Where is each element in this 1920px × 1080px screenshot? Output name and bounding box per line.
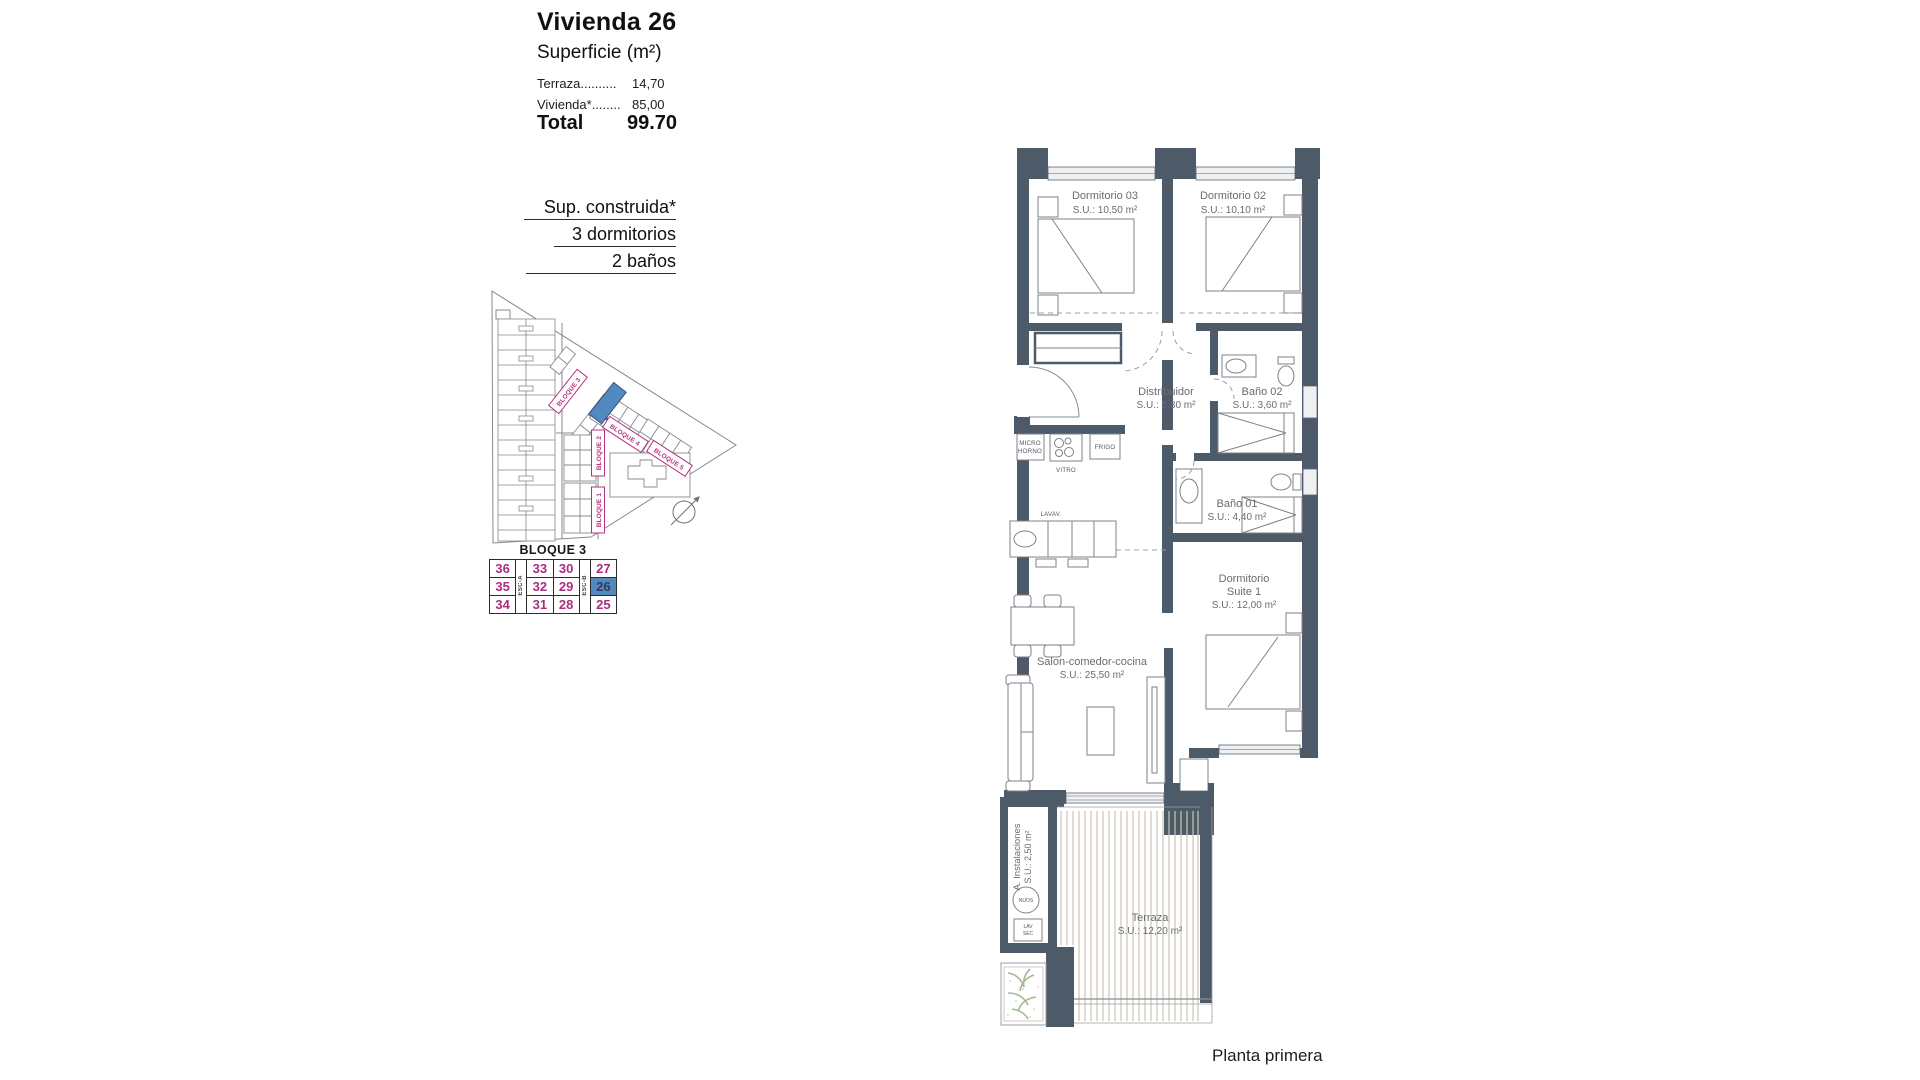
built-info-bathrooms: 2 baños	[526, 250, 676, 274]
label-vitro: VITRO	[1056, 467, 1076, 474]
label-bano01: Baño 01	[1217, 498, 1258, 510]
floor-plan: Dormitorio 03 S.U.: 10,50 m² Dormitorio …	[990, 135, 1350, 1045]
area-salon: S.U.: 25,50 m²	[1060, 670, 1125, 681]
nightstand	[1286, 613, 1302, 633]
chair	[1014, 645, 1031, 657]
label-instalaciones: A. Instalaciones	[1012, 823, 1023, 890]
unit-cell: 27	[590, 560, 616, 578]
label-distribuidor: Distribuidor	[1138, 386, 1194, 398]
block-table: BLOQUE 3 36 ESC-A 33 30 ESC-B 27 35 32 2…	[489, 543, 617, 614]
label-dorm02: Dormitorio 02	[1200, 190, 1266, 202]
label-sec: SEC	[1023, 931, 1034, 937]
site-townhouse-strip	[498, 319, 555, 541]
label-lav: LAV	[1023, 924, 1033, 930]
sofa-arm	[1006, 781, 1030, 791]
nightstand	[1284, 195, 1302, 215]
north-compass-icon	[671, 497, 699, 525]
surface-row-terraza: Terraza.......... 14,70	[537, 76, 687, 91]
planter	[1001, 963, 1046, 1025]
cooktop	[1050, 434, 1082, 461]
label-bano02: Baño 02	[1242, 386, 1283, 398]
sink-basin	[1180, 479, 1198, 503]
bed-dorm02	[1206, 217, 1300, 291]
site-blocks	[550, 347, 692, 533]
island-sink	[1014, 531, 1036, 547]
washer-dryer	[1014, 919, 1042, 941]
page-title: Vivienda 26	[537, 8, 676, 37]
unit-cell: 28	[553, 596, 579, 614]
unit-cell: 34	[490, 596, 516, 614]
plan-sheet: Vivienda 26 Superficie (m²) Terraza.....…	[0, 0, 1920, 1080]
label-suite-1: Dormitorio	[1219, 573, 1270, 585]
area-instalaciones: S.U.: 2,50 m²	[1023, 830, 1033, 883]
unit-cell: 35	[490, 578, 516, 596]
block-table-title: BLOQUE 3	[489, 543, 617, 557]
label-terraza: Terraza	[1132, 912, 1170, 924]
terrace-decking	[1061, 811, 1198, 1021]
toilet-bowl	[1271, 474, 1291, 490]
table-row: 36 ESC-A 33 30 ESC-B 27	[490, 560, 617, 578]
area-bano01: S.U.: 4,40 m²	[1208, 512, 1268, 523]
nightstand	[1284, 293, 1302, 313]
table-row: 35 32 29 26	[490, 578, 617, 596]
area-dorm03: S.U.: 10,50 m²	[1073, 205, 1138, 216]
surface-row-label: Vivienda*........	[537, 97, 621, 112]
label-horno: HORNO	[1018, 448, 1042, 455]
dining-table	[1011, 607, 1074, 645]
built-info: Sup. construida* 3 dormitorios 2 baños	[524, 196, 676, 277]
bed-dorm03	[1038, 219, 1134, 293]
site-plan: BLOQUE 3 BLOQUE 4 BLOQUE 5 BLOQUE 2 BLOQ…	[488, 283, 760, 551]
label-salon: Salon-comedor-cocina	[1037, 656, 1148, 668]
chair	[1044, 595, 1061, 607]
toilet-bowl	[1278, 366, 1294, 386]
unit-cell: 33	[527, 560, 553, 578]
entry-door-swing	[1029, 367, 1079, 417]
block-label-2: BLOQUE 2	[596, 436, 603, 471]
stool	[1036, 559, 1056, 567]
label-dorm03: Dormitorio 03	[1072, 190, 1138, 202]
coffee-table	[1087, 707, 1114, 755]
area-dorm02: S.U.: 10,10 m²	[1201, 205, 1266, 216]
built-info-bedrooms: 3 dormitorios	[554, 223, 676, 247]
nightstand	[1286, 711, 1302, 731]
table-row: 34 31 28 25	[490, 596, 617, 614]
unit-cell: 31	[527, 596, 553, 614]
unit-cell: 36	[490, 560, 516, 578]
block-label-1: BLOQUE 1	[596, 493, 603, 528]
area-bano02: S.U.: 3,60 m²	[1233, 400, 1293, 411]
toilet-tank	[1293, 474, 1301, 490]
nightstand	[1038, 197, 1058, 217]
surface-row-value: 85,00	[632, 97, 665, 112]
surface-row-label: Terraza..........	[537, 76, 616, 91]
surface-subtitle: Superficie (m²)	[537, 42, 662, 64]
label-lavav: LAVAV.	[1041, 511, 1062, 518]
chair	[1014, 595, 1031, 607]
unit-cell: 29	[553, 578, 579, 596]
total-label: Total	[537, 112, 583, 135]
total-value: 99.70	[627, 112, 677, 135]
tv	[1152, 687, 1157, 773]
unit-cell: 30	[553, 560, 579, 578]
label-suite-2: Suite 1	[1227, 586, 1261, 598]
stair-b-cell: ESC-B	[579, 560, 590, 614]
shower-bath02	[1218, 413, 1294, 453]
surface-row-value: 14,70	[632, 76, 665, 91]
unit-cell-highlighted: 26	[590, 578, 616, 596]
toilet-tank	[1278, 357, 1294, 364]
area-terraza: S.U.: 12,20 m²	[1118, 926, 1183, 937]
unit-cell: 32	[527, 578, 553, 596]
nightstand	[1038, 295, 1058, 315]
floor-caption: Planta primera	[1212, 1046, 1323, 1066]
area-suite: S.U.: 12,00 m²	[1212, 600, 1277, 611]
stool	[1068, 559, 1088, 567]
label-micro: MICRO	[1019, 440, 1041, 447]
surface-row-vivienda: Vivienda*........ 85,00	[537, 97, 687, 112]
label-nuos: NUOS	[1019, 898, 1034, 904]
stair-a-cell: ESC-A	[516, 560, 527, 614]
microwave-oven	[1017, 434, 1044, 460]
label-frigo: FRIGO	[1095, 444, 1116, 451]
unit-cell: 25	[590, 596, 616, 614]
built-info-title: Sup. construida*	[524, 196, 676, 220]
sink-basin	[1226, 359, 1246, 373]
area-distribuidor: S.U.: 5,80 m²	[1137, 400, 1197, 411]
